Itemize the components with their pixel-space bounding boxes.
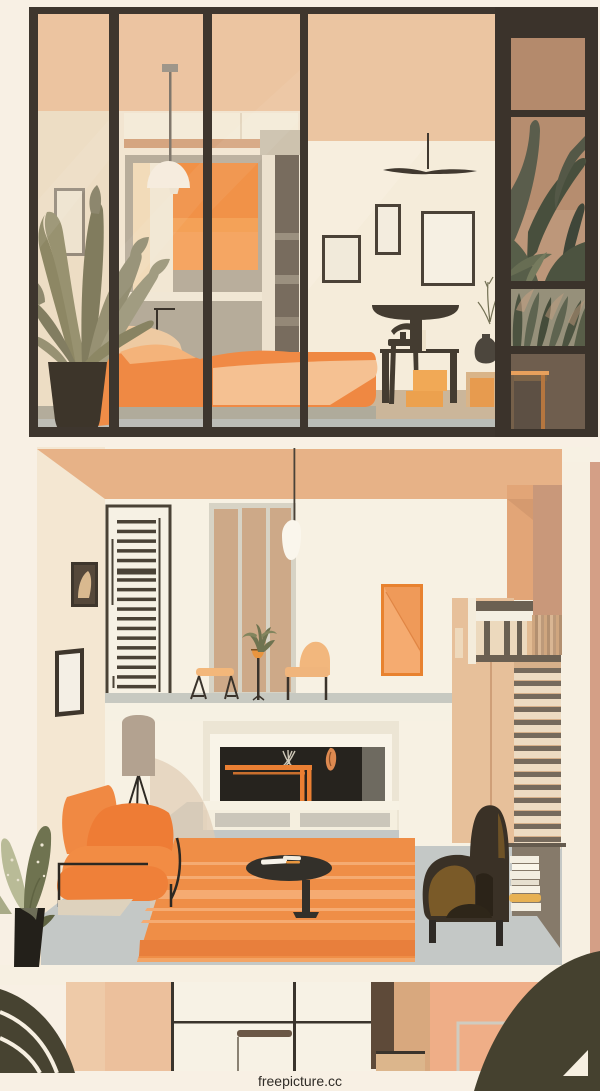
- svg-text:freepicture.cc: freepicture.cc: [258, 1073, 342, 1089]
